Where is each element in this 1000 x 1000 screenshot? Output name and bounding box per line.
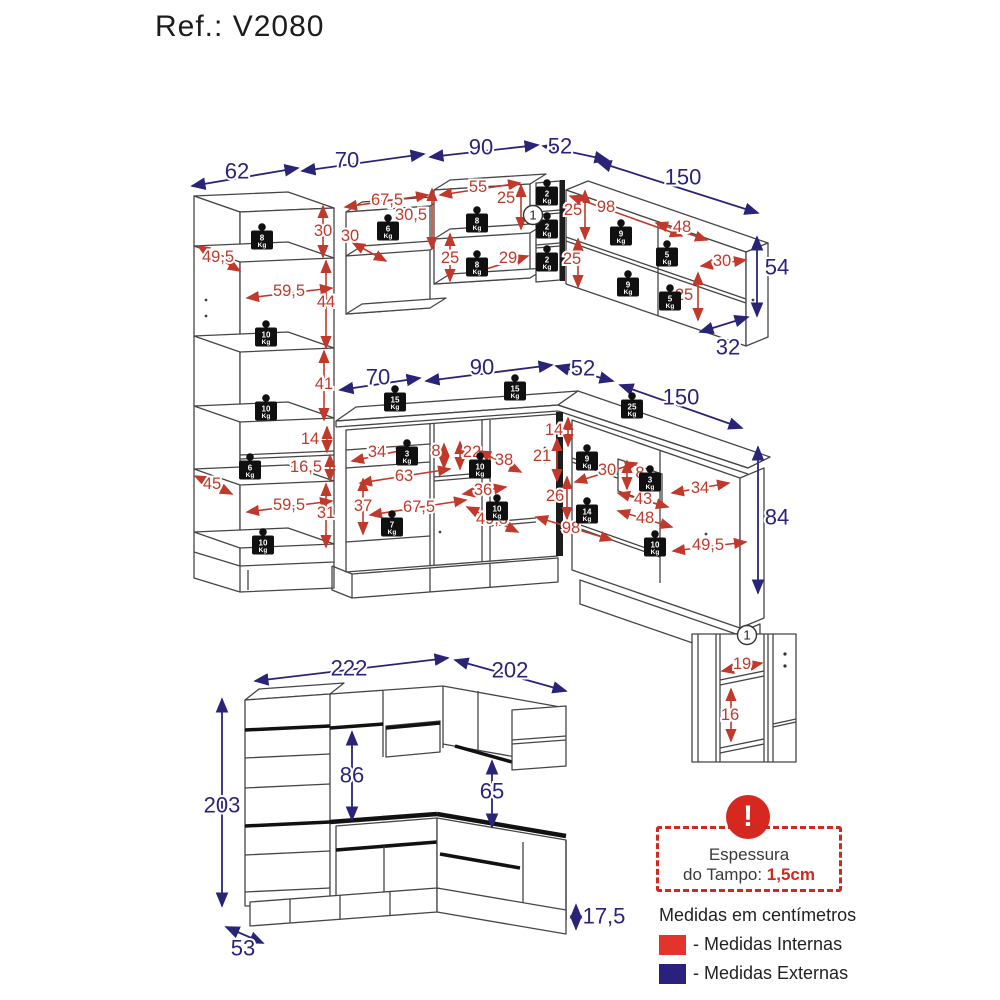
dimension-label: 70	[366, 365, 390, 390]
dimension-label: 84	[765, 505, 789, 530]
dimension-label: 16	[721, 706, 739, 724]
dimension-label: 25	[441, 249, 459, 267]
svg-text:Kg: Kg	[511, 393, 520, 400]
dimension-label: 25	[564, 201, 582, 219]
svg-text:Kg: Kg	[391, 404, 400, 411]
dimension-label: 65	[480, 779, 504, 804]
svg-text:Kg: Kg	[403, 458, 412, 465]
svg-text:Kg: Kg	[246, 472, 255, 479]
dimension-label: 30	[341, 227, 359, 245]
svg-text:Kg: Kg	[262, 339, 271, 346]
dimension-label: 14	[301, 430, 319, 448]
dimension-label: 34	[368, 443, 386, 461]
dimension-label: 44	[317, 293, 335, 311]
svg-text:Kg: Kg	[493, 513, 502, 520]
thickness-note-line1: Espessura	[659, 845, 839, 865]
svg-text:Kg: Kg	[262, 413, 271, 420]
dimension-label: 30	[713, 252, 731, 270]
base-cabinets-left-3d	[346, 412, 563, 572]
dimension-label: 63	[395, 467, 413, 485]
legend-external-row: - Medidas Externas	[659, 963, 848, 984]
svg-text:Kg: Kg	[543, 231, 552, 238]
svg-text:Kg: Kg	[651, 549, 660, 556]
elevation-view	[245, 683, 566, 934]
svg-text:Kg: Kg	[583, 516, 592, 523]
svg-text:Kg: Kg	[628, 411, 637, 418]
dimension-label: 70	[335, 148, 359, 173]
dimension-label: 37	[354, 497, 372, 515]
thickness-note-line2: do Tampo: 1,5cm	[659, 865, 839, 885]
legend-internal-row: - Medidas Internas	[659, 934, 842, 955]
external-measure-label: - Medidas Externas	[693, 963, 848, 984]
internal-measure-swatch	[659, 935, 686, 955]
dimension-label: 36	[474, 481, 492, 499]
dimension-label: 54	[765, 255, 789, 280]
weight-badge: 15Kg	[504, 374, 526, 400]
dimension-label: 25	[497, 189, 515, 207]
dimension-label: 31	[317, 504, 335, 522]
dimension-label: 43	[634, 490, 652, 508]
svg-text:Kg: Kg	[583, 463, 592, 470]
dimension-label: 86	[340, 763, 364, 788]
dimension-label: 17,5	[583, 904, 626, 929]
dimension-label: 49,5	[202, 248, 234, 266]
svg-text:1: 1	[529, 208, 536, 223]
dimension-label: 25	[563, 250, 581, 268]
dimension-label: 30	[598, 461, 616, 479]
svg-text:Kg: Kg	[646, 484, 655, 491]
thickness-value: 1,5cm	[767, 865, 815, 884]
svg-text:Kg: Kg	[258, 242, 267, 249]
dimension-label: 14	[545, 421, 563, 439]
dimension-label: 30,5	[395, 206, 427, 224]
svg-text:Kg: Kg	[476, 471, 485, 478]
dimension-label: 49,5	[692, 536, 724, 554]
dimension-label: 67,5	[403, 498, 435, 516]
dimension-label: 34	[691, 479, 709, 497]
svg-text:Kg: Kg	[259, 547, 268, 554]
dimension-label: 21	[533, 447, 551, 465]
svg-text:Kg: Kg	[543, 264, 552, 271]
dimension-label: 62	[225, 159, 249, 184]
dimension-label: 48	[636, 509, 654, 527]
dimension-label: 203	[204, 793, 241, 818]
dimension-label: 45	[203, 475, 221, 493]
dimension-label: 90	[470, 355, 494, 380]
dimension-label: 222	[331, 656, 368, 681]
dimension-label: 150	[665, 165, 702, 190]
dimension-label: 98	[597, 198, 615, 216]
technical-drawing-page: Ref.: V2080	[0, 0, 1000, 1000]
weight-badge: 25Kg	[621, 392, 643, 418]
dimension-label: 59,5	[273, 496, 305, 514]
svg-text:Kg: Kg	[543, 198, 552, 205]
dimension-label: 30	[314, 222, 332, 240]
svg-text:Kg: Kg	[624, 289, 633, 296]
svg-text:Kg: Kg	[473, 225, 482, 232]
internal-measure-label: - Medidas Internas	[693, 934, 842, 955]
detail-marker: 1	[524, 206, 543, 225]
dimension-label: 32	[716, 335, 740, 360]
svg-text:Kg: Kg	[617, 238, 626, 245]
detail-marker: 1	[738, 626, 757, 645]
detail-view	[692, 634, 796, 762]
svg-text:Kg: Kg	[666, 303, 675, 310]
dimension-label: 29	[499, 249, 517, 267]
dimension-label: 48	[673, 218, 691, 236]
dimension-label: 8	[431, 442, 440, 460]
svg-text:Kg: Kg	[388, 529, 397, 536]
dimension-label: 41	[315, 375, 333, 393]
svg-text:Kg: Kg	[384, 233, 393, 240]
units-note: Medidas em centímetros	[659, 905, 856, 926]
dimension-label: 52	[571, 356, 595, 381]
dimension-label: 55	[469, 178, 487, 196]
external-measure-swatch	[659, 964, 686, 984]
dimension-label: 150	[663, 385, 700, 410]
dimension-label: 16,5	[290, 458, 322, 476]
furniture-assembly-diagram: 6270905215054327090521508422220220386655…	[0, 0, 1000, 1000]
dimension-label: 202	[492, 658, 529, 683]
svg-text:Kg: Kg	[663, 259, 672, 266]
dimension-label: 52	[548, 134, 572, 159]
svg-text:Kg: Kg	[473, 269, 482, 276]
dimension-label: 19	[733, 655, 751, 673]
dimension-label: 38	[495, 451, 513, 469]
dimension-label: 59,5	[273, 282, 305, 300]
dimension-label: 53	[231, 936, 255, 961]
dimension-label: 26	[546, 487, 564, 505]
dimension-arrow	[302, 154, 424, 171]
countertop-thickness-note: Espessura do Tampo: 1,5cm	[656, 826, 842, 892]
dimension-label: 90	[469, 135, 493, 160]
svg-text:1: 1	[743, 628, 750, 643]
